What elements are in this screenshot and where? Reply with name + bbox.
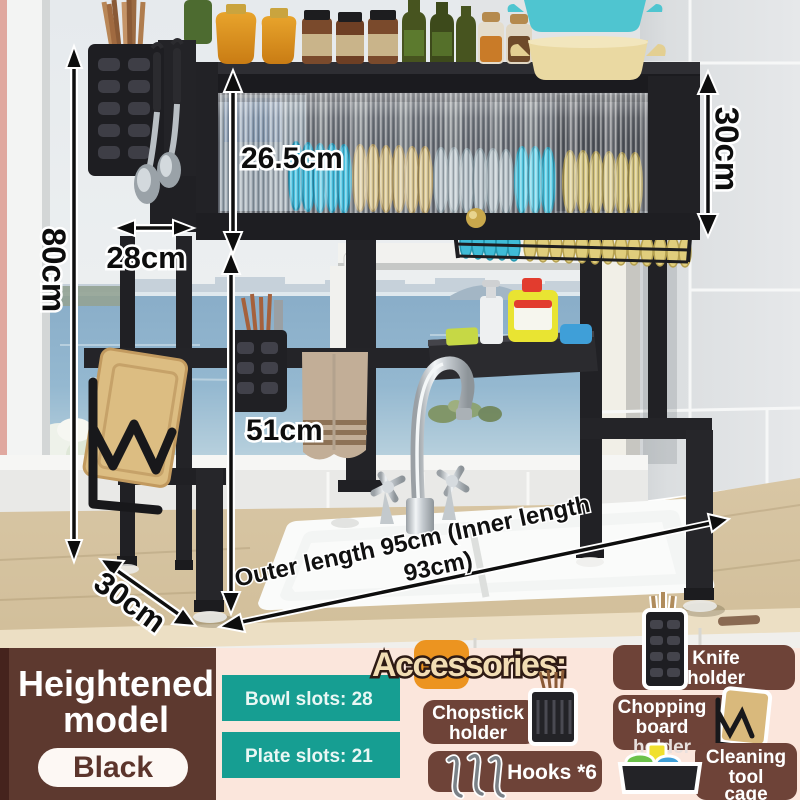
svg-text:Plate slots: 21: Plate slots: 21 [245, 746, 373, 767]
svg-text:model: model [63, 699, 169, 740]
svg-text:Cleaning: Cleaning [706, 747, 786, 768]
svg-text:Bowl slots: 28: Bowl slots: 28 [245, 689, 373, 710]
svg-text:holder: holder [449, 723, 508, 744]
svg-text:Hooks *6: Hooks *6 [507, 761, 597, 784]
svg-text:80cm: 80cm [36, 228, 73, 312]
svg-text:Chopstick: Chopstick [432, 703, 524, 724]
svg-text:Black: Black [73, 751, 153, 784]
svg-text:51cm: 51cm [246, 414, 323, 447]
svg-text:26.5cm: 26.5cm [241, 142, 343, 175]
svg-text:30cm: 30cm [709, 107, 746, 191]
svg-text:Heightened: Heightened [18, 663, 214, 704]
svg-text:Accessories:: Accessories: [372, 646, 566, 684]
svg-text:28cm: 28cm [106, 240, 185, 275]
svg-text:cage: cage [724, 784, 767, 800]
svg-text:holder: holder [687, 668, 746, 689]
svg-text:Knife: Knife [692, 648, 740, 669]
svg-text:board: board [636, 717, 689, 738]
svg-text:Chopping: Chopping [618, 697, 707, 718]
